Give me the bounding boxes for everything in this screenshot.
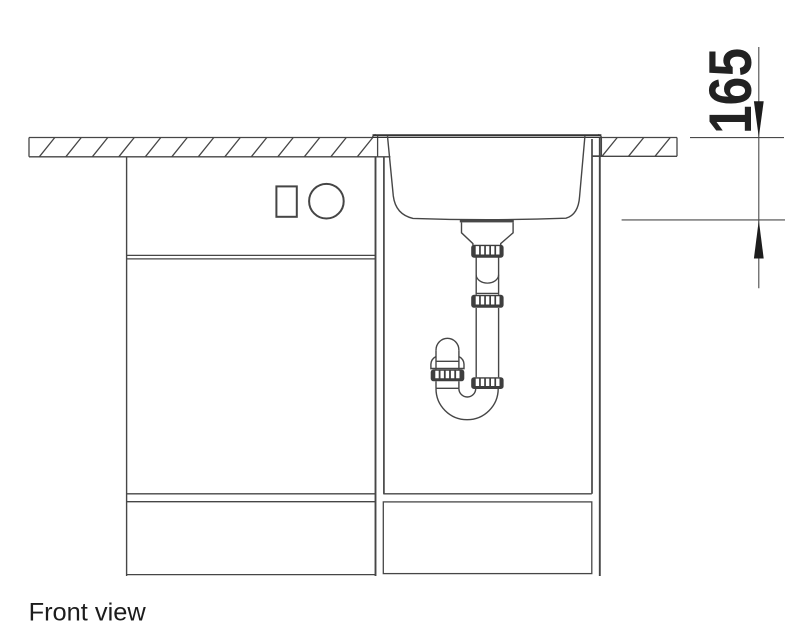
svg-text:165: 165 bbox=[697, 48, 764, 134]
svg-text:Front view: Front view bbox=[29, 599, 147, 627]
